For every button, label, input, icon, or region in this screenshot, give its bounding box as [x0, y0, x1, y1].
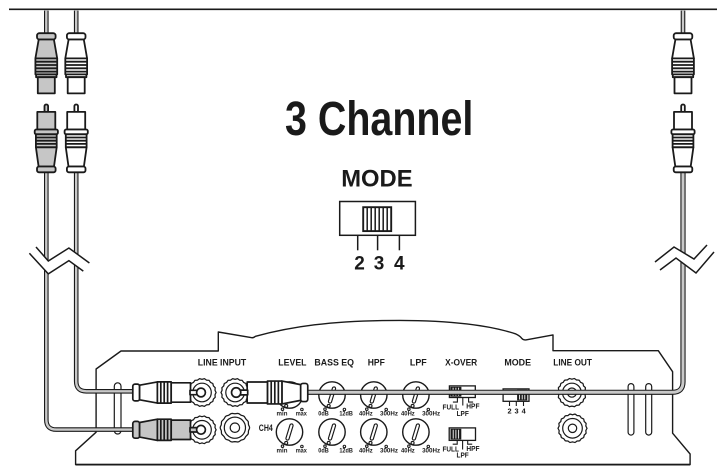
svg-text:3: 3 — [514, 406, 518, 415]
svg-text:0dB: 0dB — [318, 447, 329, 454]
svg-text:min: min — [277, 410, 288, 417]
svg-text:3 Channel: 3 Channel — [285, 93, 473, 146]
svg-text:LPF: LPF — [457, 409, 470, 418]
svg-text:LPF: LPF — [457, 450, 470, 459]
svg-text:BASS EQ: BASS EQ — [314, 357, 354, 368]
svg-text:300Hz: 300Hz — [422, 447, 440, 454]
svg-text:LEVEL: LEVEL — [278, 357, 306, 368]
svg-text:40Hz: 40Hz — [359, 447, 373, 454]
svg-text:4: 4 — [394, 254, 405, 275]
svg-text:min: min — [277, 447, 288, 454]
svg-text:max: max — [296, 410, 308, 417]
svg-text:300Hz: 300Hz — [380, 410, 398, 417]
svg-text:40Hz: 40Hz — [401, 410, 415, 417]
svg-text:LPF: LPF — [410, 357, 427, 368]
svg-text:12dB: 12dB — [339, 447, 353, 454]
svg-text:2: 2 — [507, 406, 511, 415]
svg-text:2: 2 — [354, 254, 365, 275]
svg-text:MODE: MODE — [341, 165, 412, 192]
svg-text:LINE INPUT: LINE INPUT — [198, 357, 247, 368]
svg-text:HPF: HPF — [368, 357, 385, 368]
svg-text:40Hz: 40Hz — [401, 447, 415, 454]
svg-text:max: max — [296, 447, 308, 454]
svg-text:12dB: 12dB — [339, 410, 353, 417]
svg-text:MODE: MODE — [504, 357, 531, 368]
svg-text:300Hz: 300Hz — [422, 410, 440, 417]
svg-text:40Hz: 40Hz — [359, 410, 373, 417]
svg-text:CH4: CH4 — [259, 423, 273, 433]
svg-text:300Hz: 300Hz — [380, 447, 398, 454]
svg-text:3: 3 — [374, 254, 385, 275]
svg-text:0dB: 0dB — [318, 410, 329, 417]
svg-text:LINE OUT: LINE OUT — [553, 357, 592, 368]
svg-text:X-OVER: X-OVER — [445, 357, 477, 368]
